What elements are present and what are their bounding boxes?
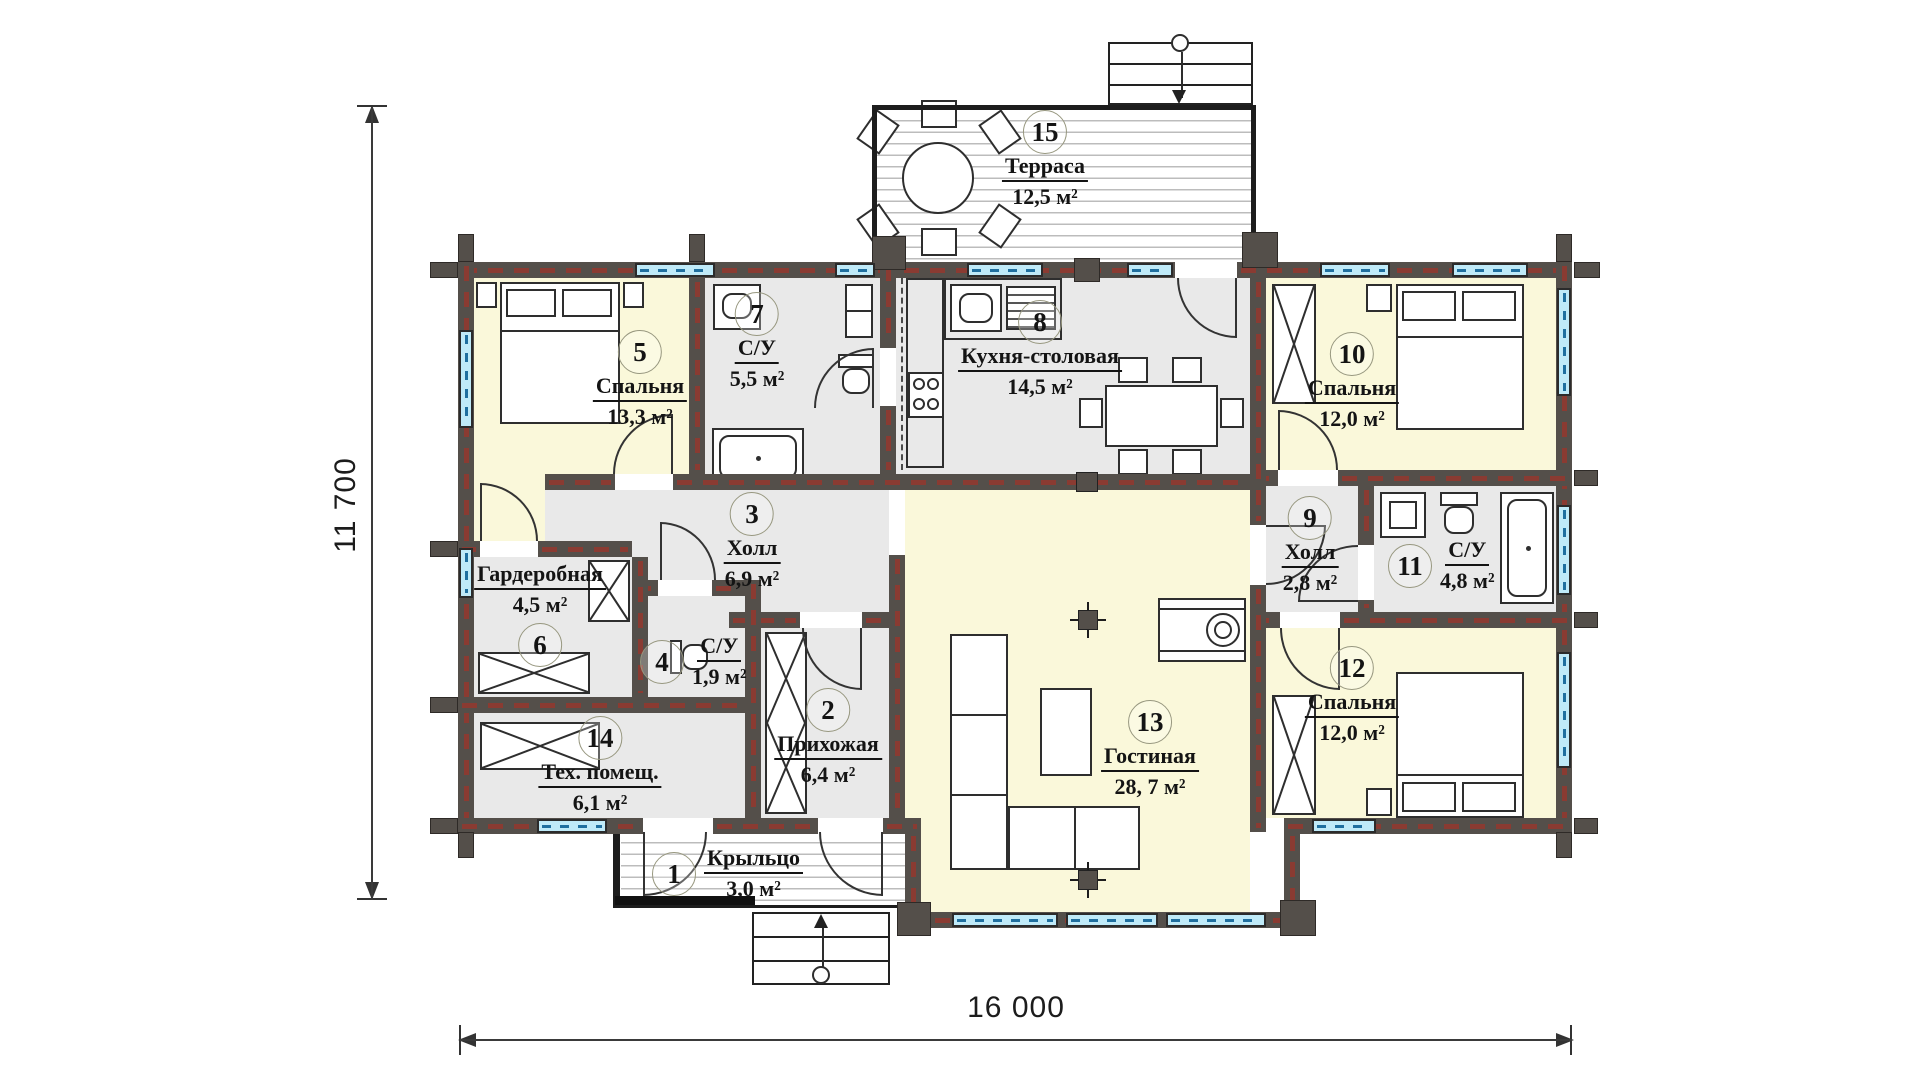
bed <box>1396 284 1524 430</box>
room-number-badge: 14 <box>578 716 622 760</box>
bed <box>1396 672 1524 818</box>
room-area: 6,1 м² <box>573 788 628 816</box>
window <box>1320 263 1390 277</box>
room-number-badge: 5 <box>618 330 662 374</box>
room-number-badge: 7 <box>735 292 779 336</box>
room-label-2: 2 Прихожая 6,4 м² <box>774 688 882 787</box>
room-name: Спальня <box>593 374 687 402</box>
room-area: 2,8 м² <box>1283 568 1338 596</box>
room-area: 13,3 м² <box>607 402 673 430</box>
room-label-12: 12 Спальня 12,0 м² <box>1305 646 1399 745</box>
room-name: Прихожая <box>774 732 882 760</box>
room-label-11: 11 С/У 4,8 м² <box>1388 538 1495 593</box>
nightstand <box>1366 284 1392 312</box>
room-name: Кухня-столовая <box>958 344 1122 372</box>
room-number-badge: 3 <box>730 492 774 536</box>
window <box>967 263 1043 277</box>
window <box>1066 913 1158 927</box>
room-area: 28, 7 м² <box>1114 772 1185 800</box>
dimension-width-text: 16 000 <box>967 991 1065 1025</box>
room-number-badge: 6 <box>518 623 562 667</box>
coffee-table <box>1040 688 1092 776</box>
room-number-badge: 10 <box>1330 332 1374 376</box>
room-label-7: 7 С/У 5,5 м² <box>730 292 785 391</box>
room-number-badge: 12 <box>1330 646 1374 690</box>
chair <box>1172 357 1202 383</box>
window <box>1452 263 1528 277</box>
room-number-badge: 8 <box>1018 300 1062 344</box>
room-area: 12,0 м² <box>1319 404 1385 432</box>
room-label-14: 14 Тех. помещ. 6,1 м² <box>538 716 661 815</box>
window <box>459 548 473 598</box>
room-area: 12,5 м² <box>1012 182 1078 210</box>
window <box>1166 913 1266 927</box>
room-area: 1,9 м² <box>692 662 747 690</box>
room-name: Тех. помещ. <box>538 760 661 788</box>
kitchen-open-boundary <box>901 278 903 470</box>
room-label-15: 15 Терраса 12,5 м² <box>1002 110 1088 209</box>
room-name: Терраса <box>1002 154 1088 182</box>
nightstand <box>476 282 497 308</box>
window <box>1312 819 1376 833</box>
fireplace <box>1158 598 1246 662</box>
toilet <box>1440 492 1478 506</box>
sofa-back <box>950 634 1008 870</box>
room-name: С/У <box>1445 538 1489 566</box>
room-label-8: 8 Кухня-столовая 14,5 м² <box>958 300 1122 399</box>
room-area: 14,5 м² <box>1007 372 1073 400</box>
window <box>835 263 875 277</box>
window <box>459 330 473 428</box>
room-name: С/У <box>735 336 779 364</box>
chair <box>1118 357 1148 383</box>
room-area: 6,9 м² <box>725 564 780 592</box>
washing-machine <box>1380 492 1426 538</box>
room-number-badge: 1 <box>652 852 696 896</box>
room-label-6: 6 Гардеробная 4,5 м² <box>474 562 606 667</box>
chair <box>1079 398 1103 428</box>
window <box>635 263 715 277</box>
room-number-badge: 11 <box>1388 544 1432 588</box>
room-label-4: 4 С/У 1,9 м² <box>640 634 747 689</box>
round-table <box>902 142 974 214</box>
chair <box>1118 449 1148 475</box>
window <box>1557 652 1571 768</box>
room-area: 3,0 м² <box>726 874 781 902</box>
porch-stairs-start-marker <box>812 966 830 984</box>
room-number-badge: 9 <box>1288 496 1332 540</box>
room-name: С/У <box>697 634 741 662</box>
room-number-badge: 2 <box>806 688 850 732</box>
room-area: 4,5 м² <box>513 590 568 618</box>
room-area: 5,5 м² <box>730 364 785 392</box>
room-area: 6,4 м² <box>801 760 856 788</box>
room-label-1: 1 Крыльцо 3,0 м² <box>652 846 803 901</box>
terrace-stairs-arrow-down <box>1172 90 1186 104</box>
window <box>1557 288 1571 396</box>
chair <box>1172 449 1202 475</box>
window <box>1557 505 1571 595</box>
toilet-bowl <box>1444 506 1474 534</box>
room-name: Спальня <box>1305 376 1399 404</box>
room-number-badge: 4 <box>640 640 684 684</box>
cabinet <box>845 284 873 338</box>
room-area: 4,8 м² <box>1440 566 1495 594</box>
window <box>952 913 1058 927</box>
stove <box>908 372 944 418</box>
room-label-13: 13 Гостиная 28, 7 м² <box>1101 700 1199 799</box>
porch-stairs-arrow-up <box>814 914 828 928</box>
room-name: Холл <box>1282 540 1339 568</box>
room-name: Гостиная <box>1101 744 1199 772</box>
room-number-badge: 13 <box>1128 700 1172 744</box>
floor-plan: 1 Крыльцо 3,0 м² 2 Прихожая 6,4 м² 3 Хол… <box>0 0 1920 1080</box>
room-label-3: 3 Холл 6,9 м² <box>724 492 781 591</box>
room-label-9: 9 Холл 2,8 м² <box>1282 496 1339 595</box>
chair <box>921 228 957 256</box>
room-number-badge: 15 <box>1023 110 1067 154</box>
sofa-seat <box>1008 806 1140 870</box>
room-area: 12,0 м² <box>1319 718 1385 746</box>
room-name: Холл <box>724 536 781 564</box>
room-label-10: 10 Спальня 12,0 м² <box>1305 332 1399 431</box>
nightstand <box>623 282 644 308</box>
nightstand <box>1366 788 1392 816</box>
chair <box>1220 398 1244 428</box>
room-name: Спальня <box>1305 690 1399 718</box>
window <box>1127 263 1173 277</box>
terrace-stairs-start-marker <box>1171 34 1189 52</box>
room-label-5: 5 Спальня 13,3 м² <box>593 330 687 429</box>
bathtub <box>1500 492 1554 604</box>
room-name: Крыльцо <box>704 846 803 874</box>
room-name: Гардеробная <box>474 562 606 590</box>
dimension-height-text: 11 700 <box>329 457 363 553</box>
window <box>537 819 607 833</box>
